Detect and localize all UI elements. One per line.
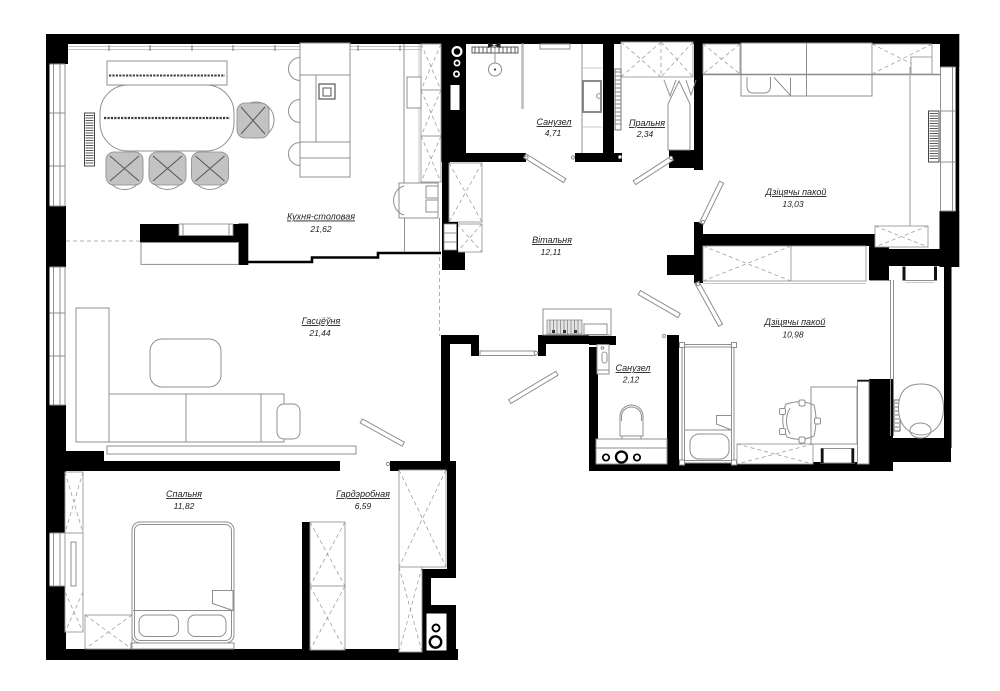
svg-text:Вітальня: Вітальня (532, 235, 572, 245)
svg-text:Пральня: Пральня (629, 118, 665, 128)
svg-text:Кухня-столовая: Кухня-столовая (287, 212, 355, 222)
svg-text:21,62: 21,62 (309, 224, 332, 234)
svg-text:Спальня: Спальня (166, 489, 202, 499)
svg-text:10,98: 10,98 (782, 330, 804, 340)
svg-text:4,71: 4,71 (545, 128, 562, 138)
svg-text:13,03: 13,03 (782, 199, 804, 209)
svg-text:12,11: 12,11 (541, 247, 562, 257)
svg-text:Дзіцячы пакой: Дзіцячы пакой (764, 317, 826, 327)
svg-text:6,59: 6,59 (355, 501, 372, 511)
svg-text:Гасцёўня: Гасцёўня (302, 316, 341, 326)
svg-text:Санузел: Санузел (616, 363, 651, 373)
svg-text:2,34: 2,34 (636, 129, 654, 139)
svg-text:Санузел: Санузел (537, 117, 572, 127)
svg-text:Гардэробная: Гардэробная (336, 489, 390, 499)
svg-text:2,12: 2,12 (622, 375, 640, 385)
svg-text:Дзіцячы пакой: Дзіцячы пакой (765, 187, 827, 197)
svg-text:11,82: 11,82 (174, 501, 195, 511)
svg-text:21,44: 21,44 (308, 328, 331, 338)
